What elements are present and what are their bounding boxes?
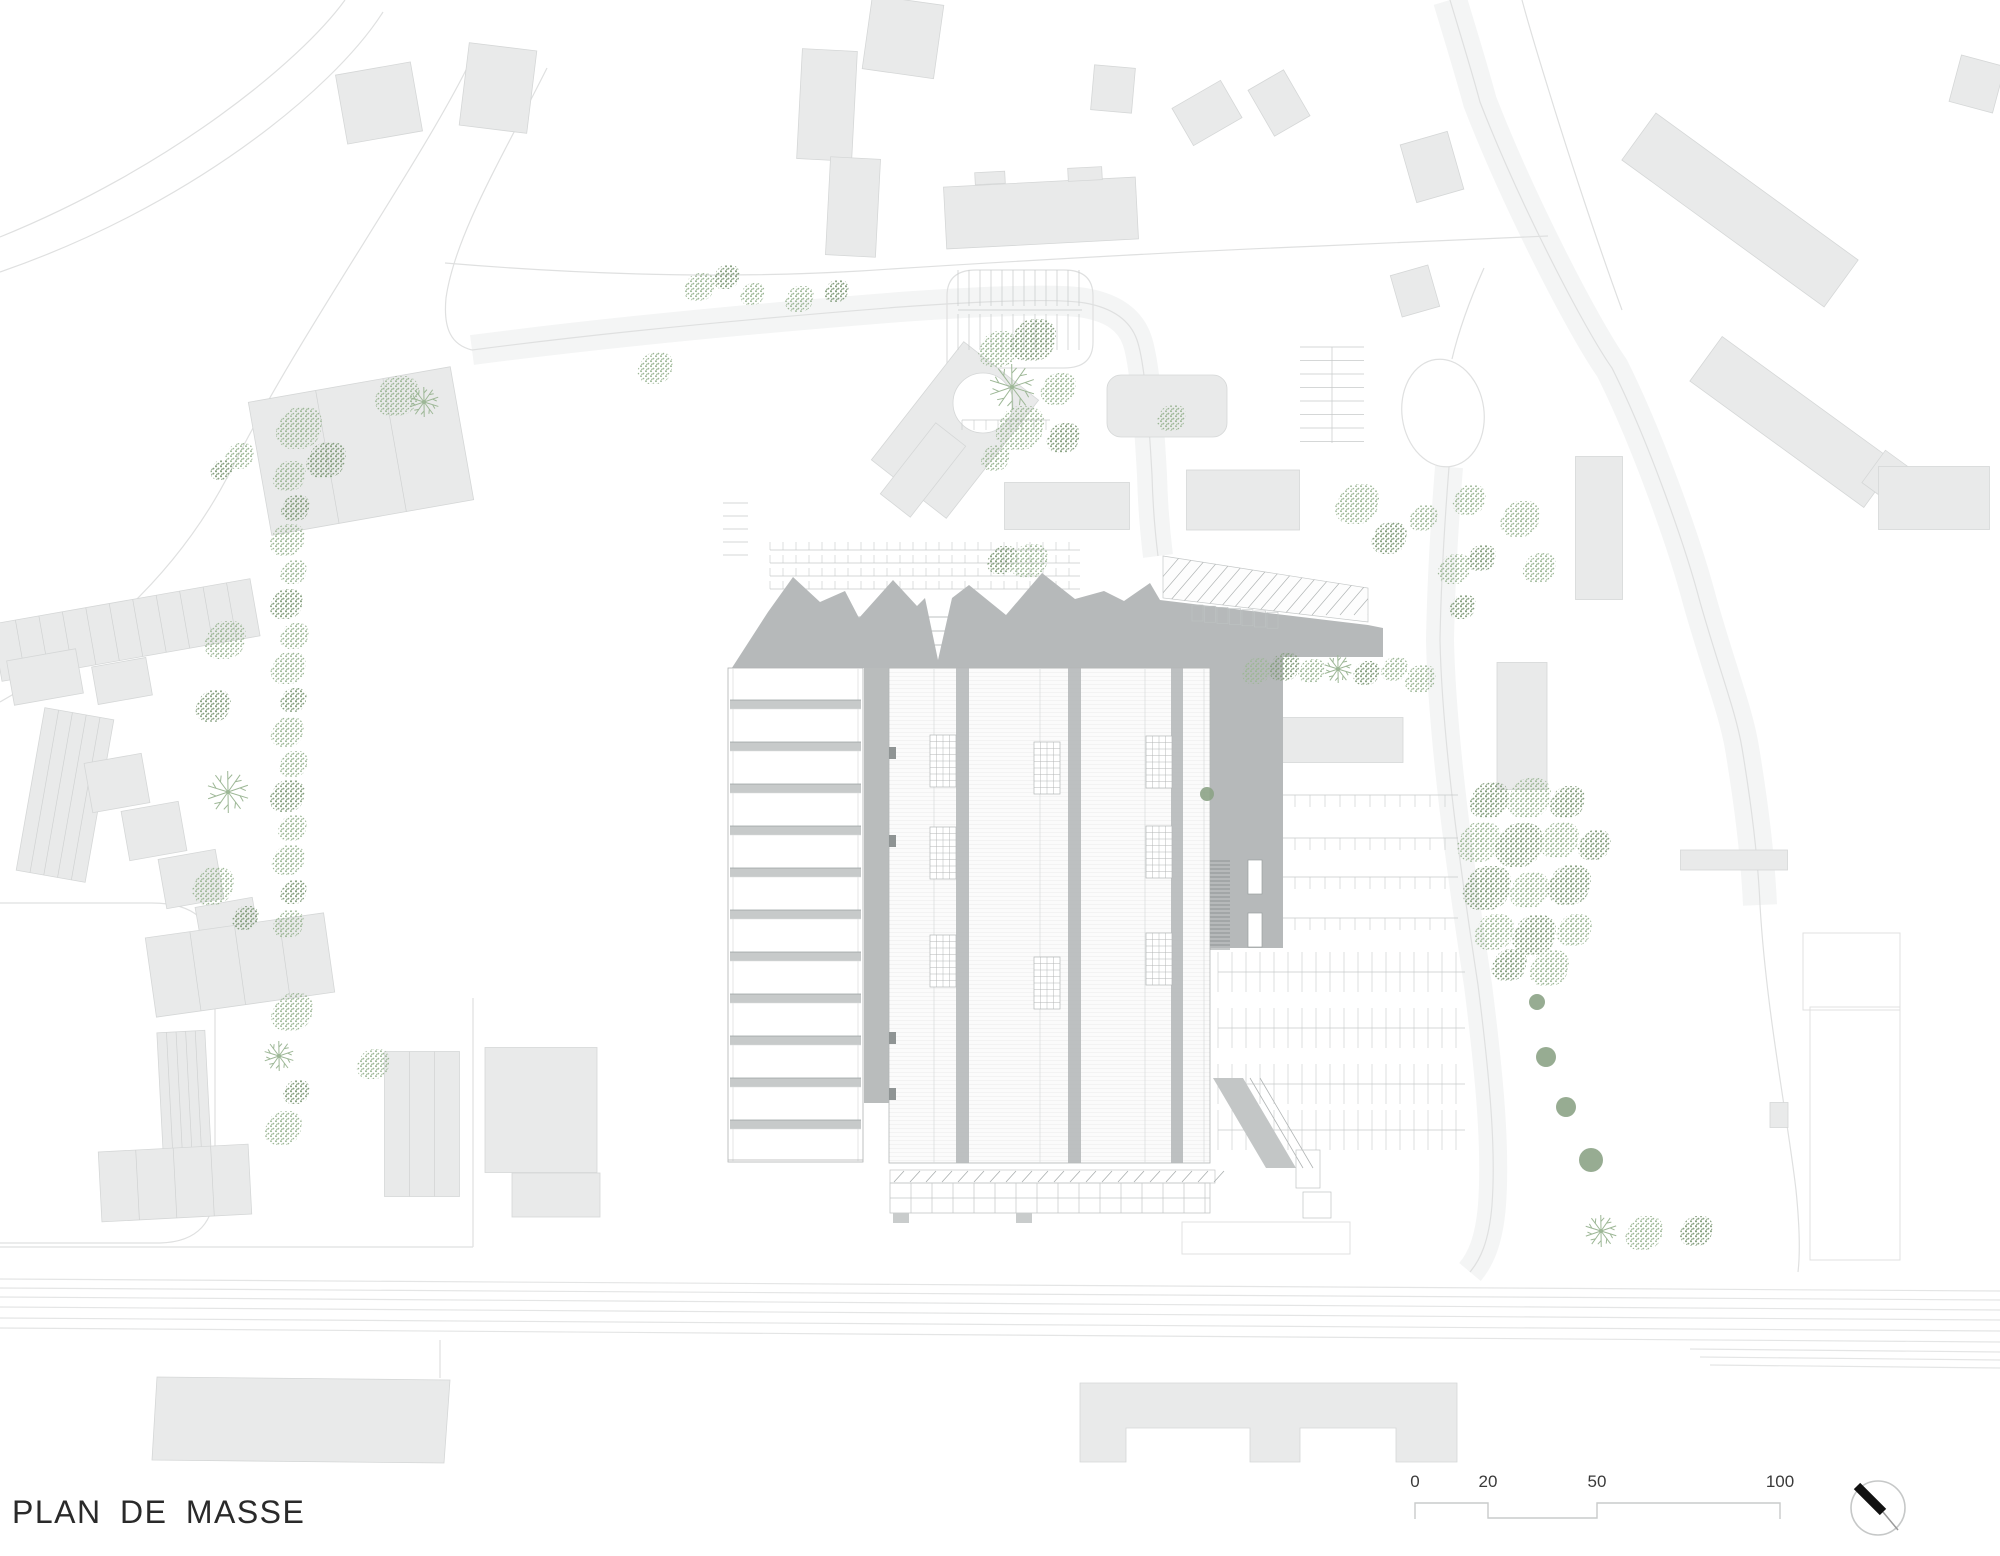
north-arrow-graphic <box>1848 1478 1910 1540</box>
scale-label-20: 20 <box>1479 1472 1498 1492</box>
scale-label-50: 50 <box>1588 1472 1607 1492</box>
scale-bar: 0 20 50 100 <box>1405 1470 1805 1532</box>
site-plan-page: PLAN DE MASSE 0 20 50 100 <box>0 0 2000 1556</box>
scale-label-100: 100 <box>1766 1472 1794 1492</box>
scale-label-0: 0 <box>1410 1472 1419 1492</box>
site-plan-drawing <box>0 0 2000 1556</box>
north-arrow-icon <box>1848 1478 1910 1540</box>
plan-title: PLAN DE MASSE <box>12 1494 305 1531</box>
